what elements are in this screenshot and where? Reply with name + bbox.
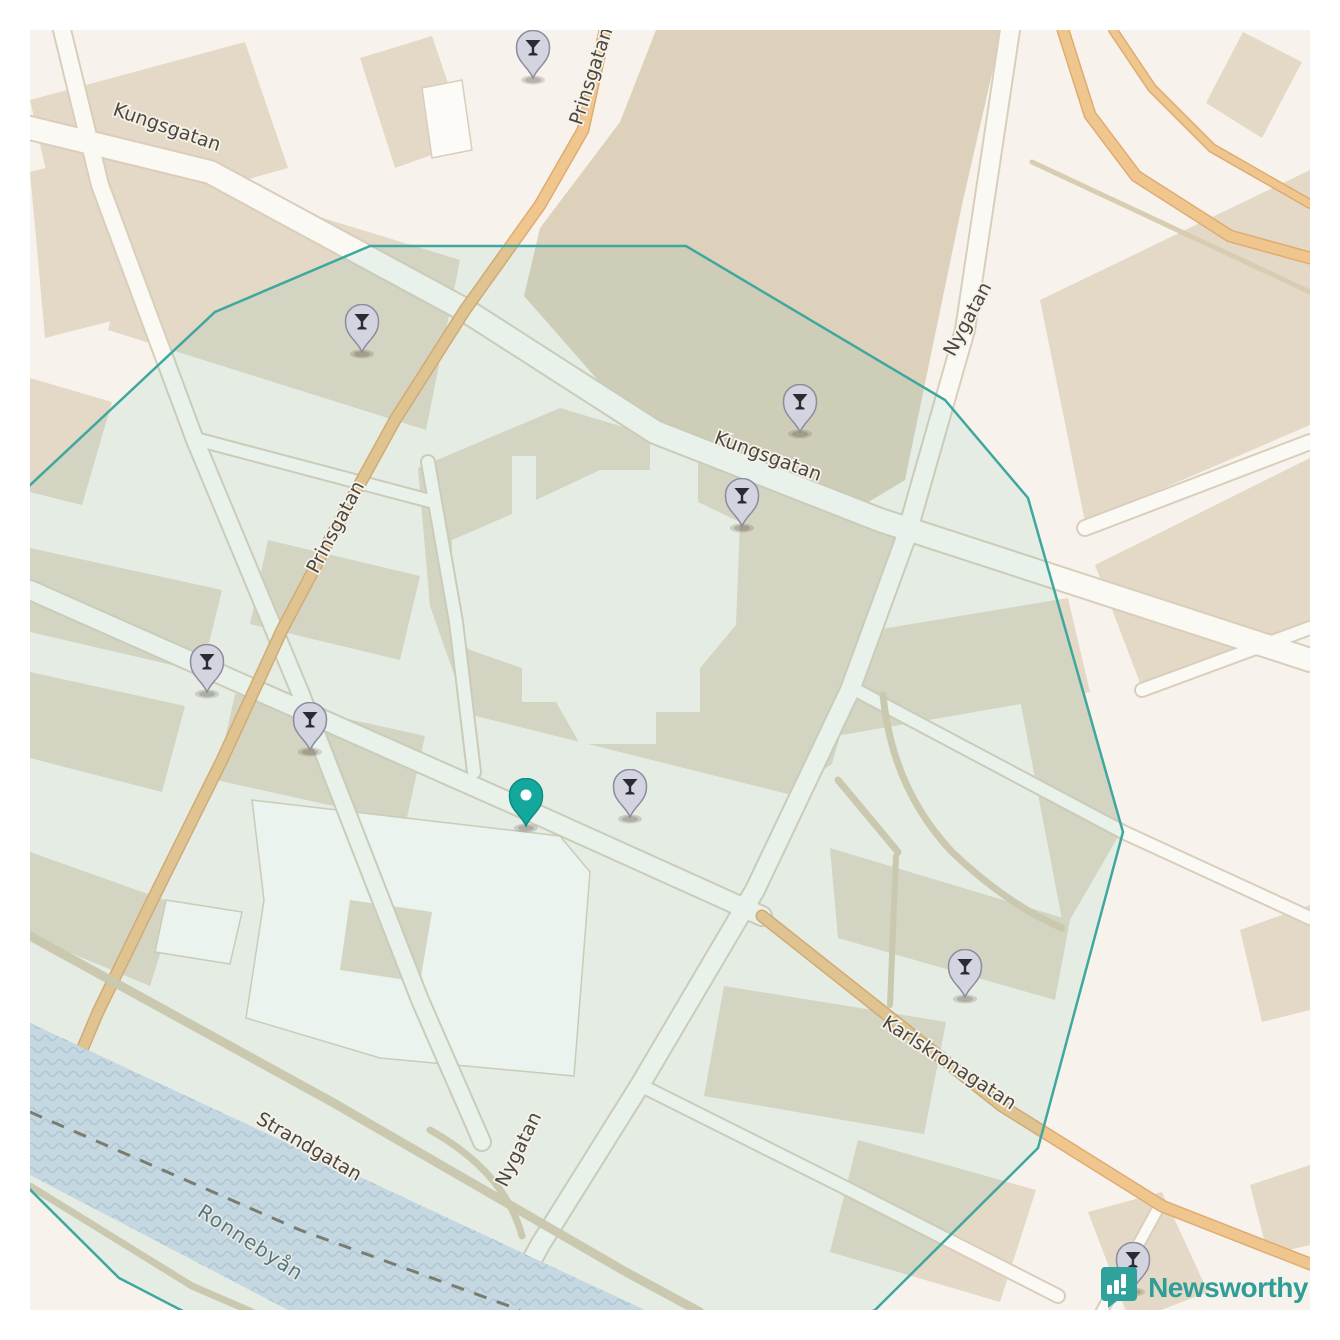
cocktail-venue-marker[interactable] (722, 478, 762, 534)
cocktail-venue-marker[interactable] (945, 949, 985, 1005)
cocktail-venue-marker[interactable] (780, 384, 820, 440)
cocktail-venue-marker[interactable] (342, 304, 382, 360)
center-pin-marker[interactable] (506, 778, 546, 834)
cocktail-venue-marker[interactable] (187, 644, 227, 700)
cocktail-venue-marker[interactable] (290, 702, 330, 758)
map-canvas[interactable]: KungsgatanPrinsgatanPrinsgatanKungsgatan… (30, 30, 1310, 1310)
map-page: KungsgatanPrinsgatanPrinsgatanKungsgatan… (0, 0, 1340, 1340)
newsworthy-badge-icon (1100, 1266, 1138, 1310)
cocktail-venue-marker[interactable] (513, 30, 553, 86)
newsworthy-logo: Newsworthy (1100, 1266, 1308, 1310)
cocktail-venue-marker[interactable] (610, 769, 650, 825)
newsworthy-logo-text: Newsworthy (1148, 1269, 1308, 1307)
